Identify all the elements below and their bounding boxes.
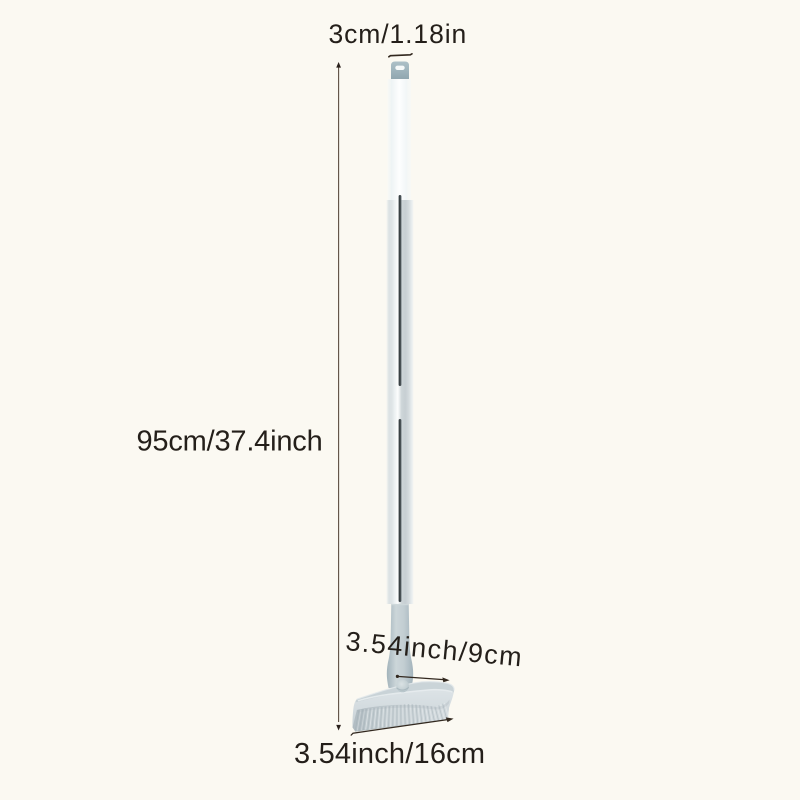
svg-text:3cm/1.18in: 3cm/1.18in [329,19,468,49]
svg-text:3.54inch/16cm: 3.54inch/16cm [294,738,485,770]
svg-text:95cm/37.4inch: 95cm/37.4inch [137,426,323,458]
